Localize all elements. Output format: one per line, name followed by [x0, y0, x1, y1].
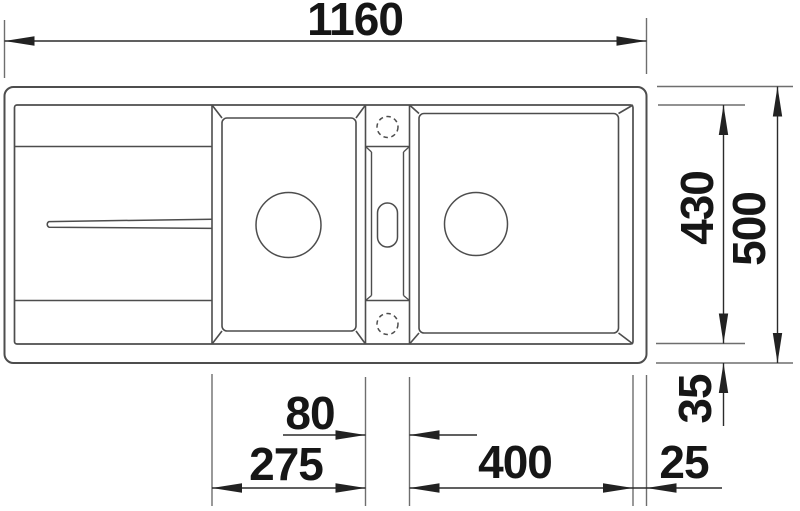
right-bowl-inner — [419, 114, 619, 334]
center-divider — [366, 105, 410, 344]
divider-chamfer-1 — [366, 147, 372, 153]
tap-hole-bottom — [377, 314, 398, 335]
right-bowl-chamfer-bl — [410, 333, 420, 344]
dim-label-divider-width: 80 — [285, 390, 334, 436]
dim-label-right-bowl-width: 400 — [478, 439, 552, 485]
right-bowl-chamfer-br — [619, 333, 634, 344]
extension-lines — [5, 18, 794, 506]
middle-bowl-chamfer-bl — [212, 331, 222, 344]
sink-outer-rim — [5, 87, 647, 363]
drawing-canvas — [0, 0, 800, 511]
sink-inner-edge — [15, 105, 634, 344]
right-bowl — [410, 105, 634, 344]
dim-label-overall-width: 1160 — [307, 0, 403, 42]
middle-bowl-chamfer-tl — [212, 105, 222, 118]
drainboard — [15, 147, 213, 301]
sink-body — [5, 87, 647, 363]
dim-label-right-edge-offset: 25 — [659, 439, 708, 485]
right-bowl-drain — [445, 193, 508, 256]
right-bowl-chamfer-tl — [410, 105, 420, 114]
overflow-slot — [378, 203, 398, 247]
middle-bowl-inner — [222, 118, 356, 331]
middle-bowl-chamfer-br — [356, 331, 366, 344]
sink-technical-drawing: 1160 80 275 400 25 430 500 35 — [0, 0, 800, 511]
dim-label-bottom-rim-offset: 35 — [672, 374, 718, 423]
dim-label-left-bowl-width: 275 — [249, 441, 323, 487]
middle-bowl-drain — [256, 193, 321, 258]
middle-bowl-chamfer-tr — [356, 105, 366, 118]
drainboard-groove — [47, 219, 212, 228]
dim-label-overall-depth: 500 — [726, 192, 772, 266]
middle-bowl — [212, 105, 366, 344]
divider-chamfer-2 — [404, 147, 410, 153]
dim-label-inner-depth: 430 — [674, 171, 720, 245]
right-bowl-chamfer-tr — [619, 105, 634, 114]
tap-hole-top — [377, 117, 398, 138]
